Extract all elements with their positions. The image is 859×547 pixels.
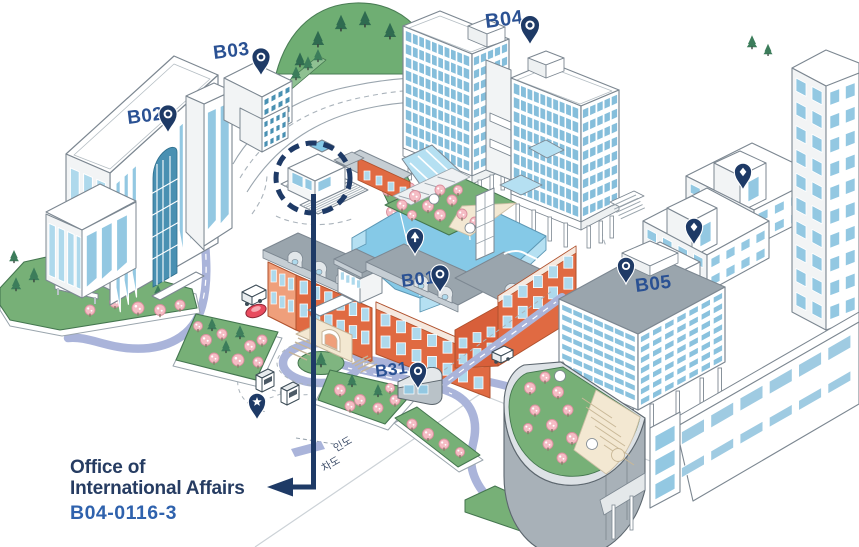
svg-text:B31: B31 (374, 358, 409, 381)
svg-text:International Affairs: International Affairs (70, 478, 245, 499)
svg-text:차도: 차도 (320, 454, 343, 474)
svg-text:B04: B04 (484, 6, 525, 33)
svg-text:Office of: Office of (70, 457, 146, 478)
svg-text:B04-0116-3: B04-0116-3 (70, 502, 177, 524)
svg-text:B03: B03 (212, 39, 251, 64)
svg-text:인도: 인도 (332, 434, 355, 454)
svg-text:B05: B05 (634, 272, 673, 297)
